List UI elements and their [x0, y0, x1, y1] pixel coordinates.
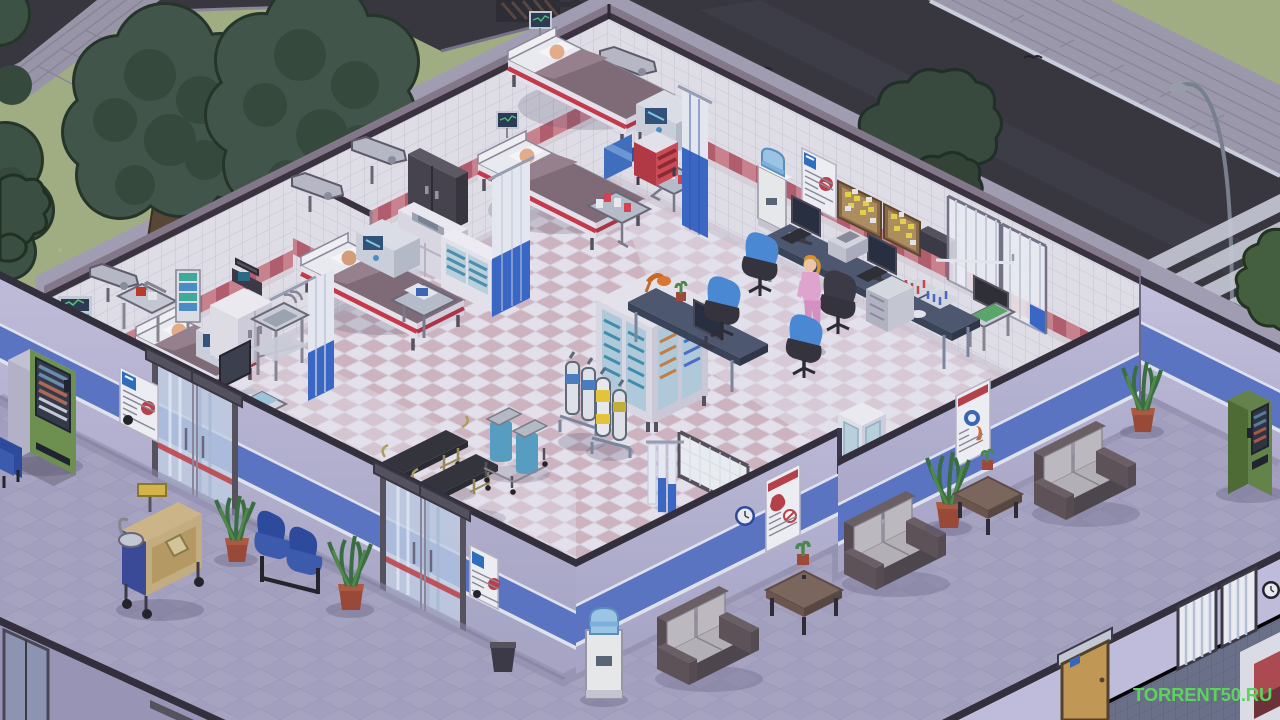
svg-text:TORRENT50.RU: TORRENT50.RU	[1133, 684, 1272, 705]
